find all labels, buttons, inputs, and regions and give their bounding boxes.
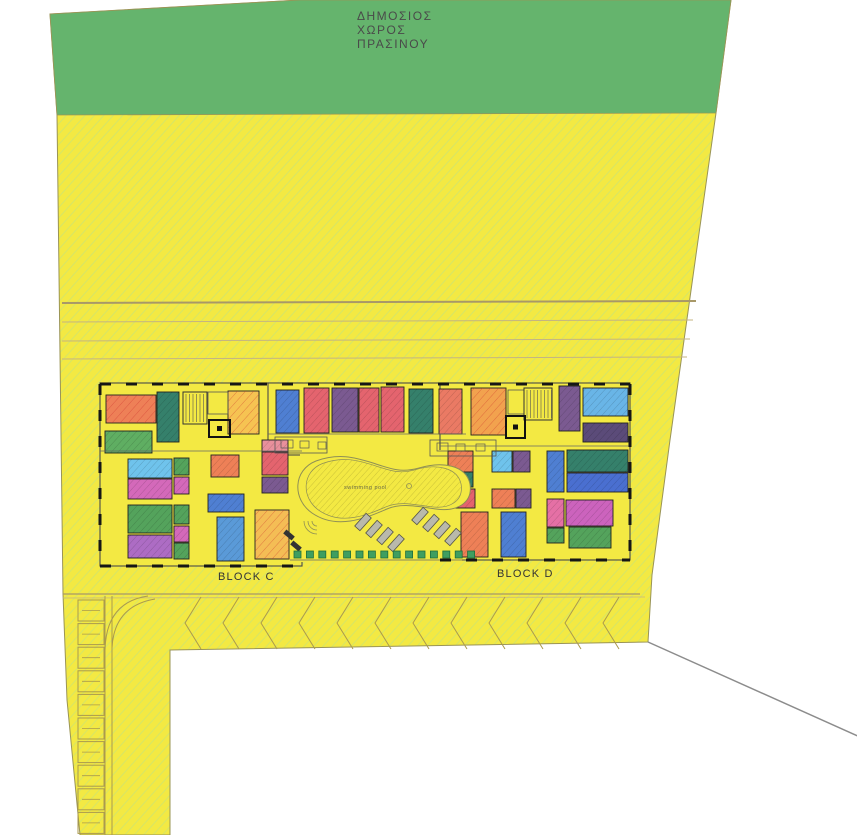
room-hatch-overlay	[332, 388, 358, 432]
shrub-planting	[418, 551, 425, 558]
shrub-planting	[443, 551, 450, 558]
room-hatch-overlay	[461, 512, 488, 557]
elevator-car	[513, 425, 518, 430]
room-hatch-overlay	[128, 505, 172, 533]
room-hatch-overlay	[492, 489, 515, 508]
generated-plan-geometry	[0, 0, 857, 835]
room-hatch-overlay	[439, 389, 462, 434]
room-hatch-overlay	[359, 388, 379, 432]
room-hatch-overlay	[471, 388, 506, 435]
room-hatch-overlay	[174, 543, 189, 559]
room-hatch-overlay	[492, 451, 512, 472]
room-hatch-overlay	[583, 423, 628, 442]
shrub-planting	[368, 551, 375, 558]
room-hatch-overlay	[516, 489, 531, 508]
room-hatch-overlay	[174, 505, 189, 524]
room-hatch-overlay	[583, 388, 628, 416]
room-hatch-overlay	[211, 455, 239, 477]
swimming-pool-label: swimming pool	[344, 485, 387, 491]
room-hatch-overlay	[547, 528, 564, 543]
shrub-planting	[356, 551, 363, 558]
room-hatch-overlay	[228, 391, 259, 434]
room-hatch-overlay	[128, 535, 172, 558]
room-hatch-overlay	[566, 500, 613, 526]
room-hatch-overlay	[255, 510, 289, 559]
shrub-planting	[393, 551, 400, 558]
room-hatch-overlay	[304, 388, 329, 433]
shrub-planting	[381, 551, 388, 558]
room-hatch-overlay	[559, 386, 580, 431]
shrub-planting	[306, 551, 313, 558]
room-hatch-overlay	[174, 458, 189, 475]
elevator-car	[217, 426, 222, 431]
room-hatch-overlay	[567, 450, 628, 472]
green-space-label-line-2: ΧΩΡΟΣ	[357, 23, 406, 37]
green-space-label-line-1: ΔΗΜΟΣΙΟΣ	[357, 9, 433, 23]
room-hatch-overlay	[106, 395, 156, 423]
room-hatch-overlay	[381, 387, 404, 432]
room-hatch-overlay	[174, 526, 189, 542]
shrub-planting	[344, 551, 351, 558]
shrub-planting	[294, 551, 301, 558]
room-hatch-overlay	[276, 390, 299, 433]
room-hatch-overlay	[128, 459, 172, 478]
shrub-planting	[319, 551, 326, 558]
block-c-label: BLOCK C	[218, 571, 275, 583]
shrub-planting	[455, 551, 462, 558]
room-hatch-overlay	[569, 527, 611, 548]
shrub-planting	[468, 551, 475, 558]
shrub-planting	[430, 551, 437, 558]
room-hatch-overlay	[128, 479, 172, 499]
shrub-planting	[406, 551, 413, 558]
room-hatch-overlay	[157, 392, 179, 442]
room-hatch-overlay	[262, 477, 288, 493]
room-hatch-overlay	[208, 494, 244, 512]
room-hatch-overlay	[547, 451, 564, 492]
site-plan-canvas: ΔΗΜΟΣΙΟΣ ΧΩΡΟΣ ΠΡΑΣΙΝΟΥ swimming pool BL…	[0, 0, 857, 835]
room-hatch-overlay	[567, 473, 628, 492]
room-hatch-overlay	[262, 452, 288, 475]
shrub-planting	[331, 551, 338, 558]
room-hatch-overlay	[513, 451, 530, 472]
room-hatch-overlay	[217, 517, 244, 561]
block-d-label: BLOCK D	[497, 568, 554, 580]
room-hatch-overlay	[501, 512, 526, 557]
room-hatch-overlay	[547, 499, 564, 527]
green-space-label-line-3: ΠΡΑΣΙΝΟΥ	[357, 37, 429, 51]
room-hatch-overlay	[174, 477, 189, 494]
architectural-site-plan: ΔΗΜΟΣΙΟΣ ΧΩΡΟΣ ΠΡΑΣΙΝΟΥ swimming pool BL…	[0, 0, 857, 835]
room-hatch-overlay	[409, 389, 433, 433]
room-hatch-overlay	[105, 431, 152, 453]
